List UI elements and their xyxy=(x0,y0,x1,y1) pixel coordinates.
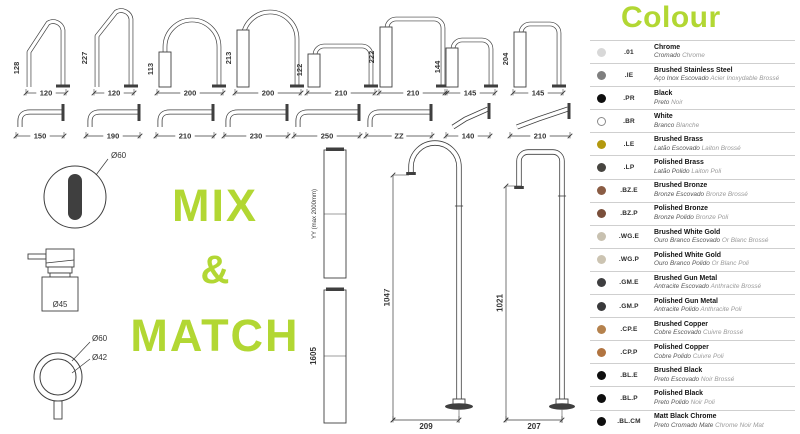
colour-code: .LP xyxy=(611,164,647,171)
colour-name: Brushed Black xyxy=(654,367,734,376)
colour-row-le: .LEBrushed BrassLatão Escovado Laiton Br… xyxy=(590,132,795,155)
colour-swatch xyxy=(597,71,606,80)
colour-row-gme: .GM.EBrushed Gun MetalAntracite Escovado… xyxy=(590,271,795,294)
colour-translation: Preto Noir xyxy=(654,99,683,107)
colour-name: Brushed Brass xyxy=(654,136,741,145)
colour-code: .CP.P xyxy=(611,349,647,356)
colour-names: Brushed Stainless SteelAço Inox Escovado… xyxy=(654,67,779,84)
colour-code: .GM.E xyxy=(611,279,647,286)
colour-translation: Branco Blanche xyxy=(654,122,699,130)
colour-names: ChromeCromado Chrome xyxy=(654,44,705,61)
colour-names: Brushed Gun MetalAntracite Escovado Anth… xyxy=(654,275,761,292)
colour-translation: Antracite Polido Anthracite Poli xyxy=(654,306,742,314)
colour-translation: Bronze Polido Bronze Poli xyxy=(654,214,728,222)
colour-name: Brushed Gun Metal xyxy=(654,275,761,284)
colour-name: Polished Gun Metal xyxy=(654,298,742,307)
svg-text:YY (max 2000mm): YY (max 2000mm) xyxy=(312,189,318,239)
colour-swatch xyxy=(597,186,606,195)
colour-name: Brushed Stainless Steel xyxy=(654,67,779,76)
colour-swatch xyxy=(597,117,606,126)
colour-name: Polished Copper xyxy=(654,344,724,353)
colour-swatch xyxy=(597,140,606,149)
colour-row-01: .01ChromeCromado Chrome xyxy=(590,40,795,63)
colour-name: Chrome xyxy=(654,44,705,53)
svg-text:1047: 1047 xyxy=(384,288,392,306)
colour-translation: Ouro Branco Polido Or Blanc Poli xyxy=(654,260,749,268)
colour-names: BlackPreto Noir xyxy=(654,90,683,107)
colour-translation: Latão Escovado Laiton Brossé xyxy=(654,145,741,153)
colour-row-wgp: .WG.PPolished White GoldOuro Branco Poli… xyxy=(590,248,795,271)
extension-tube-1605-diagram: 1605 xyxy=(306,286,356,432)
colour-title: Colour xyxy=(621,1,721,35)
colour-translation: Bronze Escovado Bronze Brossé xyxy=(654,191,748,199)
colour-swatch xyxy=(597,417,606,426)
colour-code: .PR xyxy=(611,95,647,102)
colour-name: Polished White Gold xyxy=(654,252,749,261)
colour-translation: Antracite Escovado Anthracite Brossé xyxy=(654,283,761,291)
colour-name: Black xyxy=(654,90,683,99)
colour-translation: Preto Cromado Mate Chrome Noir Mat xyxy=(654,422,764,430)
colour-names: WhiteBranco Blanche xyxy=(654,113,699,130)
colour-names: Brushed CopperCobre Escovado Cuivre Bros… xyxy=(654,321,743,338)
colour-code: .BZ.P xyxy=(611,210,647,217)
colour-code: .BR xyxy=(611,118,647,125)
colour-swatch xyxy=(597,278,606,287)
colour-names: Brushed White GoldOuro Branco Escovado O… xyxy=(654,229,768,246)
colour-swatch xyxy=(597,163,606,172)
colour-swatch xyxy=(597,255,606,264)
colour-name: Brushed White Gold xyxy=(654,229,768,238)
colour-code: .BL.P xyxy=(611,395,647,402)
colour-code: .LE xyxy=(611,141,647,148)
svg-text:207: 207 xyxy=(527,422,541,431)
colour-code: .WG.E xyxy=(611,233,647,240)
colour-translation: Cobre Polido Cuivre Poli xyxy=(654,353,724,361)
colour-swatch xyxy=(597,232,606,241)
colour-names: Brushed BronzeBronze Escovado Bronze Bro… xyxy=(654,182,748,199)
colour-names: Polished BrassLatão Polido Laiton Poli xyxy=(654,159,721,176)
colour-translation: Preto Polido Noir Poli xyxy=(654,399,715,407)
colour-translation: Latão Polido Laiton Poli xyxy=(654,168,721,176)
colour-rows: .01ChromeCromado Chrome.IEBrushed Stainl… xyxy=(590,40,795,433)
colour-row-blcm: .BL.CMMatt Black ChromePreto Cromado Mat… xyxy=(590,410,795,433)
colour-swatch xyxy=(597,325,606,334)
colour-name: Polished Bronze xyxy=(654,205,728,214)
colour-name: White xyxy=(654,113,699,122)
svg-text:1021: 1021 xyxy=(496,294,505,312)
svg-text:209: 209 xyxy=(419,422,433,431)
colour-swatch xyxy=(597,394,606,403)
colour-code: .IE xyxy=(611,72,647,79)
colour-row-blp: .BL.PPolished BlackPreto Polido Noir Pol… xyxy=(590,386,795,409)
colour-names: Matt Black ChromePreto Cromado Mate Chro… xyxy=(654,413,764,430)
colour-names: Brushed BlackPreto Escovado Noir Brossé xyxy=(654,367,734,384)
colour-translation: Ouro Branco Escovado Or Blanc Brossé xyxy=(654,237,768,245)
colour-names: Polished BlackPreto Polido Noir Poli xyxy=(654,390,715,407)
colour-name: Polished Brass xyxy=(654,159,721,168)
colour-name: Polished Black xyxy=(654,390,715,399)
colour-code: .BL.CM xyxy=(611,418,647,425)
colour-translation: Cobre Escovado Cuivre Brossé xyxy=(654,329,743,337)
colour-code: .WG.P xyxy=(611,256,647,263)
colour-row-gmp: .GM.PPolished Gun MetalAntracite Polido … xyxy=(590,294,795,317)
colour-row-ble: .BL.EBrushed BlackPreto Escovado Noir Br… xyxy=(590,363,795,386)
colour-swatch xyxy=(597,302,606,311)
colour-code: .01 xyxy=(611,49,647,56)
colour-name: Matt Black Chrome xyxy=(654,413,764,422)
colour-row-lp: .LPPolished BrassLatão Polido Laiton Pol… xyxy=(590,155,795,178)
extension-tube-yy-diagram: YY (max 2000mm) xyxy=(306,142,356,286)
colour-row-bze: .BZ.EBrushed BronzeBronze Escovado Bronz… xyxy=(590,179,795,202)
colour-translation: Cromado Chrome xyxy=(654,52,705,60)
colour-row-pr: .PRBlackPreto Noir xyxy=(590,86,795,109)
floor-spout-1047-diagram: 1047209 xyxy=(384,136,476,434)
colour-swatch xyxy=(597,348,606,357)
colour-row-br: .BRWhiteBranco Blanche xyxy=(590,109,795,132)
colour-swatch xyxy=(597,371,606,380)
colour-swatch xyxy=(597,209,606,218)
colour-code: .BZ.E xyxy=(611,187,647,194)
colour-row-cpe: .CP.EBrushed CopperCobre Escovado Cuivre… xyxy=(590,317,795,340)
colour-row-bzp: .BZ.PPolished BronzeBronze Polido Bronze… xyxy=(590,202,795,225)
colour-name: Brushed Bronze xyxy=(654,182,748,191)
colour-translation: Preto Escovado Noir Brossé xyxy=(654,376,734,384)
colour-names: Polished Gun MetalAntracite Polido Anthr… xyxy=(654,298,742,315)
colour-swatch xyxy=(597,94,606,103)
colour-names: Brushed BrassLatão Escovado Laiton Bross… xyxy=(654,136,741,153)
colour-name: Brushed Copper xyxy=(654,321,743,330)
colour-row-wge: .WG.EBrushed White GoldOuro Branco Escov… xyxy=(590,225,795,248)
svg-text:1605: 1605 xyxy=(309,347,318,365)
colour-row-ie: .IEBrushed Stainless SteelAço Inox Escov… xyxy=(590,63,795,86)
colour-code: .GM.P xyxy=(611,303,647,310)
colour-row-cpp: .CP.PPolished CopperCobre Polido Cuivre … xyxy=(590,340,795,363)
colour-legend: Colour .01ChromeCromado Chrome.IEBrushed… xyxy=(588,0,800,434)
colour-code: .CP.E xyxy=(611,326,647,333)
colour-swatch xyxy=(597,48,606,57)
colour-names: Polished CopperCobre Polido Cuivre Poli xyxy=(654,344,724,361)
colour-names: Polished BronzeBronze Polido Bronze Poli xyxy=(654,205,728,222)
colour-translation: Aço Inox Escovado Acier Inoxydable Bross… xyxy=(654,75,779,83)
colour-names: Polished White GoldOuro Branco Polido Or… xyxy=(654,252,749,269)
floor-spout-1021-diagram: 1021207 xyxy=(496,136,580,434)
colour-code: .BL.E xyxy=(611,372,647,379)
